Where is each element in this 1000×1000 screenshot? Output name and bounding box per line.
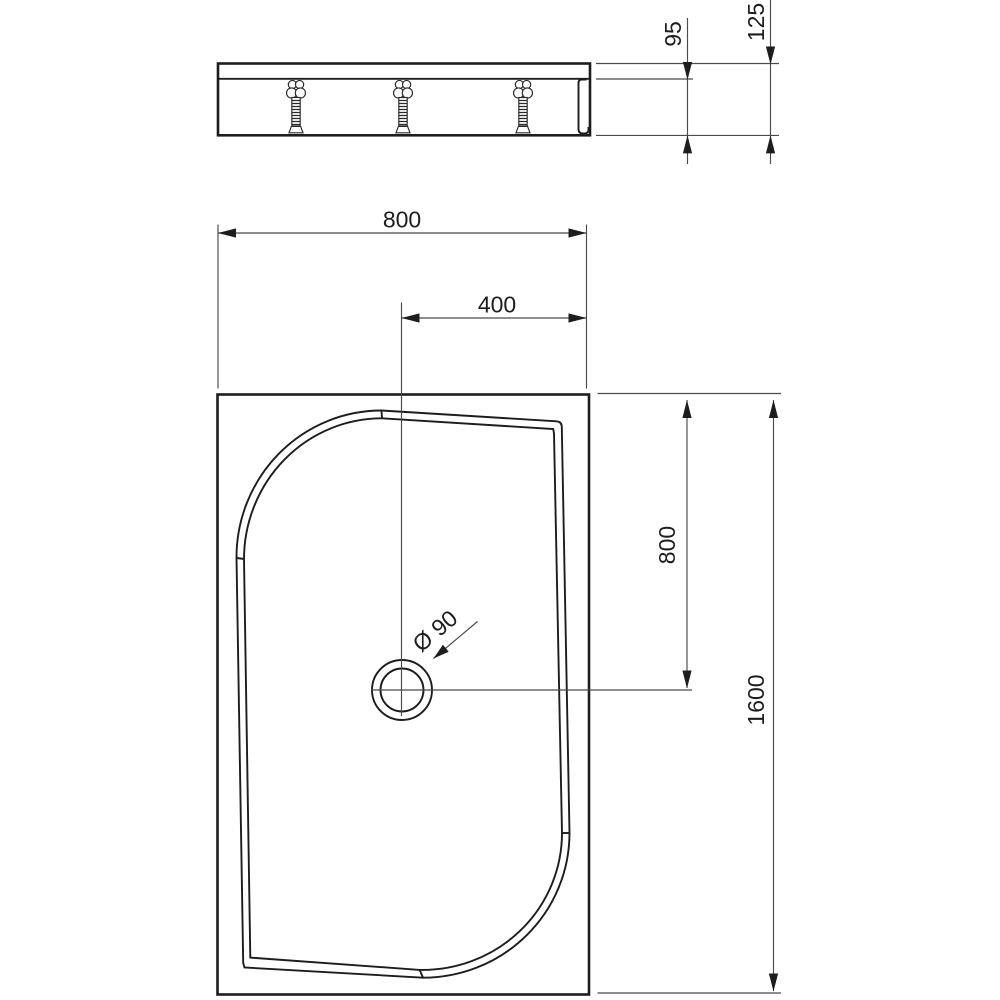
side-view: [218, 64, 590, 136]
arrow-down-icon: [683, 62, 692, 80]
arrow-right-icon: [569, 228, 587, 237]
arrow-left-icon: [402, 313, 420, 322]
arrow-up-icon: [682, 400, 691, 418]
plan-view: Ø 90: [218, 303, 693, 995]
arrow-down-icon: [769, 974, 778, 992]
shower-tray-drawing: 95 125 Ø 90 800 400: [0, 0, 1000, 1000]
dim-label-overall-length: 1600: [743, 674, 769, 725]
plan-view-outline: [218, 395, 590, 995]
arrow-up-icon: [769, 400, 778, 418]
arrow-right-icon: [569, 313, 587, 322]
technical-drawing-canvas: 95 125 Ø 90 800 400: [0, 0, 1000, 1000]
dim-label-drain-offset-y: 800: [654, 526, 680, 564]
tangent-tick-left: [237, 558, 244, 559]
tangent-tick-top: [382, 411, 383, 418]
arrow-up-icon: [683, 135, 692, 153]
side-view-dimensions: 95 125: [596, 0, 779, 164]
arrow-up-icon: [766, 135, 775, 153]
dim-label-drain-offset-x: 400: [478, 292, 516, 318]
arrow-down-icon: [682, 671, 691, 689]
arrow-down-icon: [766, 47, 775, 65]
dim-label-overall-height: 125: [743, 3, 769, 41]
dim-label-body-depth: 95: [660, 21, 686, 47]
dim-label-top-width: 800: [383, 207, 421, 233]
arrow-left-icon: [218, 228, 236, 237]
